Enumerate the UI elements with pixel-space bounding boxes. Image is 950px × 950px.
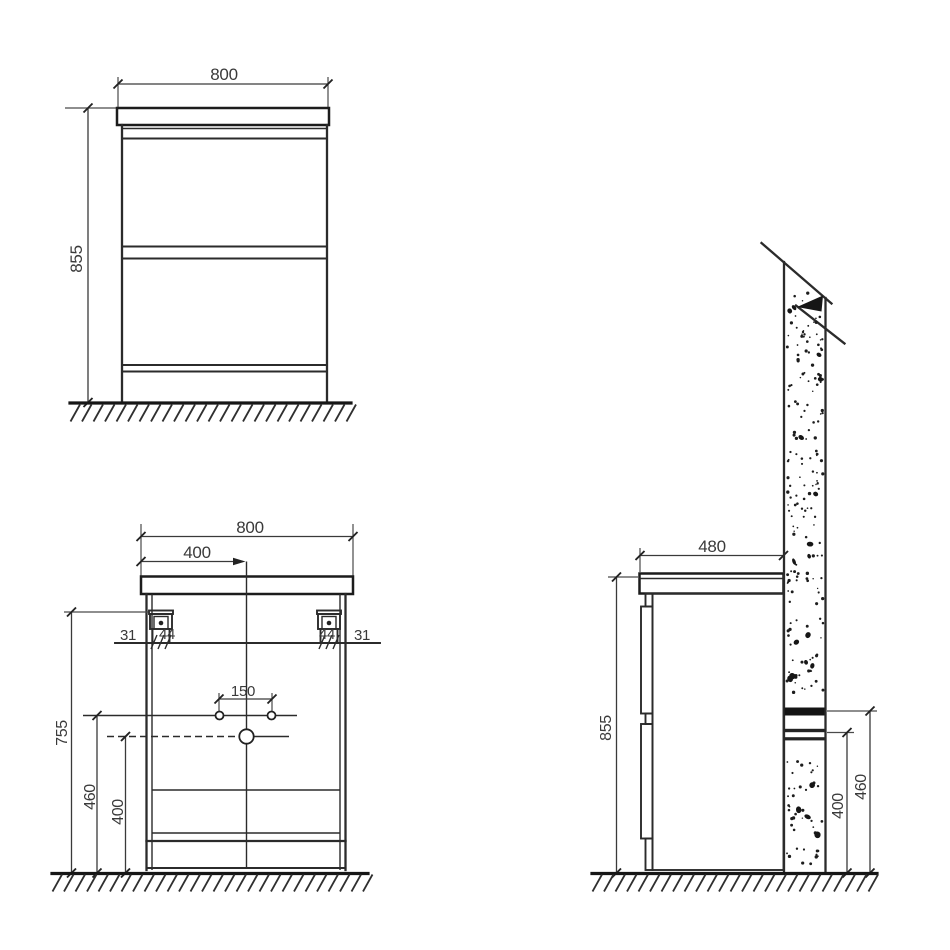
front-cabinet <box>117 108 329 403</box>
inst-width-label: 800 <box>236 518 263 537</box>
side-depth-label: 480 <box>698 537 725 556</box>
drawer-front-2 <box>641 724 653 839</box>
faucet-hole-right <box>268 712 276 720</box>
inlet-pipe-line <box>785 729 825 732</box>
drain-pipe-section <box>785 708 825 716</box>
left-bracket-label: 44 <box>159 626 175 643</box>
bracket-screw-hole <box>159 621 164 626</box>
right-bracket-label: 44 <box>319 626 335 643</box>
faucet-holes-dimension: 150 <box>219 683 272 711</box>
faucet-hole-left <box>216 712 224 720</box>
inst-center-dimension: 400 <box>141 543 246 565</box>
side-inlet-height-label: 460 <box>853 774 870 800</box>
inlet-pipe-line <box>785 737 825 740</box>
side-height-dimensions-right: 460 400 <box>827 711 877 873</box>
right-wall-gap-label: 31 <box>354 627 370 644</box>
installation-side-view: 480 855 <box>592 243 877 874</box>
drawer-front-1 <box>641 607 653 714</box>
side-depth-dimension: 480 <box>640 537 784 572</box>
front-width-label: 800 <box>210 65 237 84</box>
side-cabinet <box>640 574 784 871</box>
side-height-dimension: 855 <box>598 577 638 873</box>
front-width-dimension: 800 <box>118 65 328 109</box>
drain-height-label: 400 <box>110 799 127 825</box>
mount-height-label: 755 <box>54 720 71 746</box>
inlet-height-label: 460 <box>82 784 99 810</box>
plinth-leg <box>646 839 653 871</box>
front-elevation-view: 800 855 <box>65 65 351 403</box>
front-height-dimension: 855 <box>65 108 116 403</box>
faucet-spacing-label: 150 <box>231 683 255 700</box>
left-wall-gap-label: 31 <box>120 627 136 644</box>
vanity-drawing-svg: 800 855 800 <box>0 0 950 950</box>
wall-break-line-upper <box>762 243 832 304</box>
bracket-screw-hole <box>327 621 332 626</box>
installation-front-view: 800 400 <box>52 518 380 874</box>
top-rail-step <box>646 594 653 607</box>
countertop <box>117 108 329 125</box>
wall-section <box>762 243 845 872</box>
drain-hole <box>239 729 253 743</box>
arrowhead <box>233 558 246 565</box>
inst-height-dimensions: 755 460 400 <box>54 612 127 873</box>
wall-concrete-stipple <box>786 292 825 866</box>
inst-center-label: 400 <box>183 543 210 562</box>
side-height-label: 855 <box>598 715 615 741</box>
side-drain-height-label: 400 <box>830 793 847 819</box>
cabinet-body-side <box>653 594 784 871</box>
ground-hatching <box>53 405 879 892</box>
technical-drawing-canvas: 800 855 800 <box>0 0 950 950</box>
front-height-label: 855 <box>67 245 86 272</box>
countertop-side <box>640 574 784 594</box>
drawer-gap-step <box>646 714 653 725</box>
